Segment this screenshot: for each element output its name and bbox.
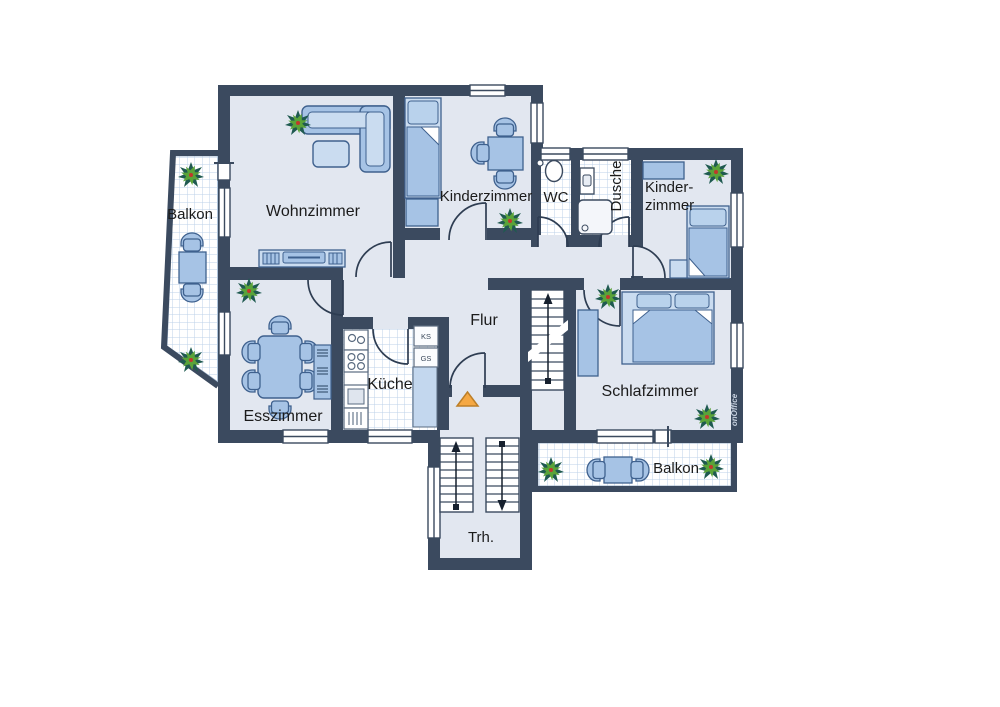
kids-table — [488, 137, 523, 170]
window — [541, 148, 570, 160]
coffee-table — [313, 141, 349, 167]
kueche-label: Küche — [367, 376, 412, 393]
window — [731, 323, 743, 368]
balcony-left-label: Balkon — [167, 206, 213, 223]
kids-chair — [494, 171, 516, 189]
window — [731, 193, 743, 247]
window — [583, 148, 628, 160]
window — [428, 467, 440, 538]
sideboard — [314, 345, 331, 399]
dusche-label: Dusche — [608, 161, 625, 212]
window — [283, 430, 328, 443]
grate — [344, 408, 368, 429]
balcony-left: Balkon — [164, 153, 218, 386]
bed — [405, 98, 441, 198]
floorplan-drawing: Balkon Balkon — [0, 0, 1000, 707]
balcony-left-chair — [181, 233, 203, 251]
floorplan-canvas: Balkon Balkon — [0, 0, 1000, 707]
balcony-right-chair — [587, 459, 605, 481]
dining-chair — [242, 341, 260, 363]
balcony-left-table — [179, 252, 206, 283]
dining-chair — [269, 316, 291, 334]
toilet — [546, 161, 563, 182]
kids-chair — [471, 142, 489, 164]
wc-label: WC — [544, 189, 569, 206]
window — [219, 188, 230, 237]
onoffice-watermark: onOffice — [730, 393, 739, 426]
kinderzimmer-right-label-2: zimmer — [645, 197, 694, 214]
wohnzimmer-label: Wohnzimmer — [266, 203, 361, 220]
kinderzimmer-right-label-1: Kinder- — [645, 179, 693, 196]
double-bed — [622, 292, 714, 364]
treppenhaus-label: Trh. — [468, 529, 494, 546]
dining-chair — [242, 370, 260, 392]
schlafzimmer-label: Schlafzimmer — [602, 383, 700, 400]
balcony-right: Balkon — [532, 443, 737, 492]
balcony-left-chair — [181, 284, 203, 302]
dining-table — [258, 336, 302, 398]
kitchen-cupboard — [413, 367, 437, 427]
wardrobe — [578, 310, 598, 376]
tv-sideboard — [259, 250, 345, 267]
window — [368, 430, 412, 443]
window — [219, 312, 230, 355]
window — [531, 103, 543, 143]
sink-basin — [583, 175, 591, 186]
chest — [406, 199, 438, 226]
flur-label: Flur — [470, 312, 498, 329]
kitchen-counter — [344, 330, 368, 429]
shower-tray — [578, 200, 612, 234]
window — [597, 430, 653, 443]
kids-chair — [494, 118, 516, 136]
balcony-right-chair — [631, 459, 649, 481]
hall-stairs — [528, 290, 568, 390]
stove — [344, 350, 368, 372]
dishwasher-label: GS — [421, 354, 432, 363]
balcony-right-table — [604, 457, 632, 483]
balcony-right-label: Balkon — [653, 460, 699, 477]
kinderzimmer-top-label: Kinderzimmer — [440, 188, 533, 205]
toilet-flush — [537, 160, 543, 166]
window — [470, 85, 505, 96]
fridge-label: KS — [421, 332, 431, 341]
dresser — [643, 162, 684, 179]
bed — [687, 206, 729, 278]
bench — [670, 260, 687, 278]
esszimmer-label: Esszimmer — [243, 408, 323, 425]
